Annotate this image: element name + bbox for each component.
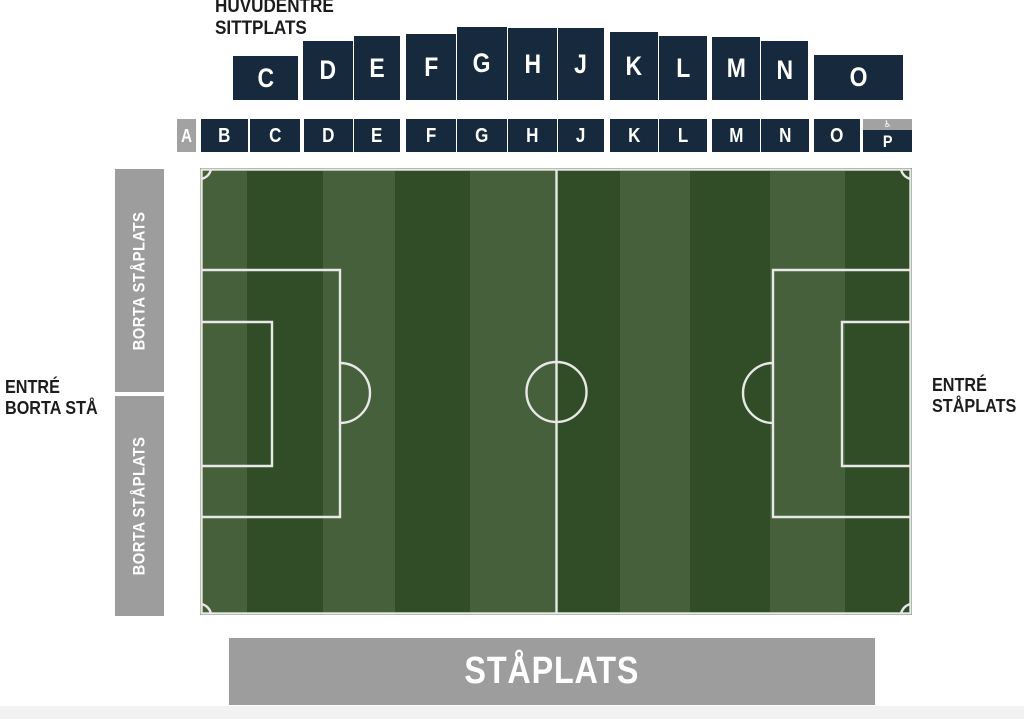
standing-entrance-label: ENTRÉ STÅPLATS: [932, 375, 1016, 417]
section-lower-a[interactable]: A: [177, 119, 196, 152]
away-entrance-line1: ENTRÉ: [5, 377, 98, 398]
section-upper-d[interactable]: D: [303, 41, 353, 100]
section-upper-l[interactable]: L: [659, 36, 707, 100]
section-lower-d[interactable]: D: [304, 119, 353, 152]
section-label: H: [526, 126, 538, 146]
section-lower-b[interactable]: B: [201, 119, 248, 152]
away-entrance-line2: BORTA STÅ: [5, 398, 98, 419]
away-stand-upper-label: BORTA STÅPLATS: [130, 211, 149, 350]
standing-stand[interactable]: STÅPLATS: [229, 638, 875, 705]
away-entrance-label: ENTRÉ BORTA STÅ: [5, 377, 98, 419]
section-label: D: [320, 57, 337, 84]
section-upper-f[interactable]: F: [406, 34, 456, 100]
away-stand-upper[interactable]: BORTA STÅPLATS: [115, 169, 164, 392]
main-entrance-label: HUVUDENTRÉ SITTPLATS: [215, 0, 334, 40]
football-pitch: [200, 168, 912, 615]
section-label: K: [626, 53, 643, 80]
section-label: L: [676, 55, 690, 82]
section-label: J: [575, 51, 588, 78]
section-lower-g[interactable]: G: [457, 119, 507, 152]
section-lower-k[interactable]: K: [610, 119, 658, 152]
main-entrance-line2: SITTPLATS: [215, 18, 334, 40]
main-entrance-line1: HUVUDENTRÉ: [215, 0, 334, 18]
section-label: F: [424, 54, 438, 81]
section-label: J: [576, 126, 585, 146]
section-upper-h[interactable]: H: [508, 28, 557, 100]
section-lower-j[interactable]: J: [558, 119, 604, 152]
standing-entrance-line1: ENTRÉ: [932, 375, 1016, 396]
page-bottom-strip: [0, 706, 1024, 719]
section-label: O: [850, 64, 868, 91]
section-upper-c[interactable]: C: [233, 56, 298, 100]
section-label: G: [473, 50, 491, 77]
section-label: H: [524, 51, 541, 78]
wheelchair-icon: ♿: [883, 120, 891, 129]
section-upper-m[interactable]: M: [712, 37, 760, 100]
standing-stand-label: STÅPLATS: [465, 650, 640, 693]
section-upper-o[interactable]: O: [814, 55, 903, 100]
section-upper-k[interactable]: K: [610, 32, 658, 100]
section-lower-c[interactable]: C: [250, 119, 300, 152]
section-label: M: [726, 55, 745, 82]
section-upper-n[interactable]: N: [761, 41, 808, 100]
standing-entrance-line2: STÅPLATS: [932, 396, 1016, 417]
section-label: E: [371, 126, 382, 146]
section-label: C: [269, 126, 281, 146]
section-upper-g[interactable]: G: [457, 27, 507, 100]
section-upper-j[interactable]: J: [558, 28, 604, 100]
section-label: P: [883, 133, 893, 150]
section-label: F: [426, 126, 436, 146]
section-label: N: [776, 57, 793, 84]
section-label: A: [181, 127, 192, 145]
section-label: M: [729, 126, 743, 146]
section-lower-e[interactable]: E: [354, 119, 400, 152]
section-lower-p[interactable]: ♿P: [863, 119, 912, 152]
section-label: O: [830, 126, 843, 146]
section-label: K: [628, 126, 640, 146]
away-stand-lower-label: BORTA STÅPLATS: [130, 437, 149, 576]
section-label: L: [678, 126, 688, 146]
away-stand-lower[interactable]: BORTA STÅPLATS: [115, 396, 164, 616]
stadium-map: HUVUDENTRÉ SITTPLATS CDEFGHJKLMNO ABCDEF…: [0, 0, 1024, 719]
section-label: G: [475, 126, 488, 146]
section-label: B: [218, 126, 230, 146]
section-label: E: [369, 55, 384, 82]
section-label: C: [257, 65, 274, 92]
section-lower-l[interactable]: L: [659, 119, 707, 152]
section-lower-h[interactable]: H: [508, 119, 557, 152]
section-lower-n[interactable]: N: [761, 119, 809, 152]
section-lower-o[interactable]: O: [814, 119, 860, 152]
section-label: N: [779, 126, 791, 146]
section-lower-f[interactable]: F: [406, 119, 456, 152]
section-lower-m[interactable]: M: [712, 119, 760, 152]
section-label: D: [322, 126, 334, 146]
section-upper-e[interactable]: E: [354, 36, 400, 100]
